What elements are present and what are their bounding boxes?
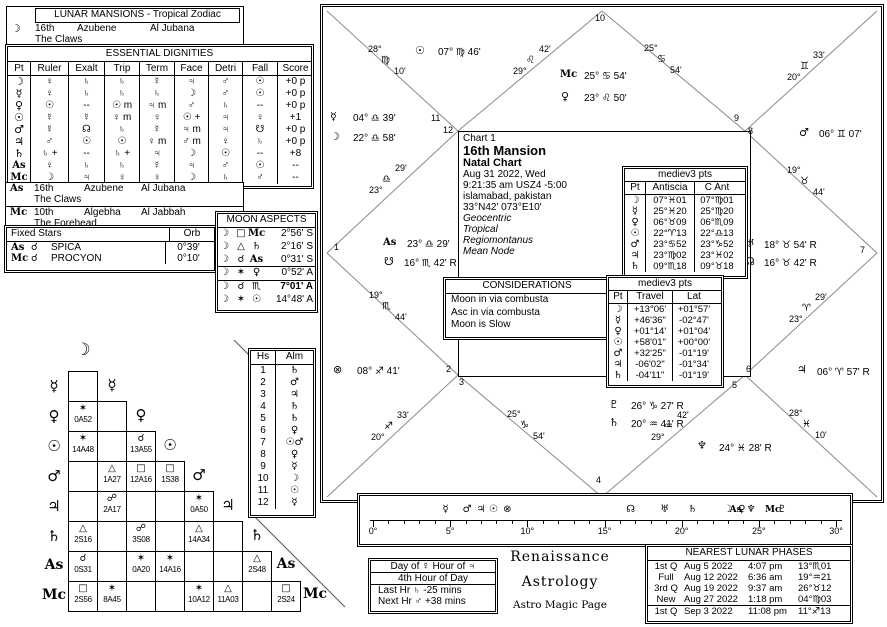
cusp-degree: 25°	[507, 410, 521, 419]
planet-glyph: ☿	[97, 376, 127, 394]
house-number: 3	[251, 389, 276, 401]
houses-almuten-panel: Hs Alm 1♄2♂3♃4♄5♄6♀7☉♂8♀9☿10☽11☉12☿	[248, 348, 316, 518]
house-almuten-row: 9☿	[251, 461, 313, 473]
lunar-phases-title: NEAREST LUNAR PHASES	[648, 547, 850, 561]
value: +01°57'	[673, 304, 715, 315]
cusp-sign-icon: ♐	[384, 422, 393, 431]
value: 07°♍01	[695, 195, 739, 206]
antiscia-title: mediev3 pts	[625, 169, 745, 182]
almuten-glyph: ♀	[276, 449, 313, 461]
last-hour: Last Hr ♄ -25 mins	[371, 585, 495, 596]
dignity-value: --	[278, 172, 313, 184]
dignity-value: ☿	[140, 160, 175, 172]
almuten-glyph: ♄	[276, 413, 313, 425]
planet-position: 16° ♉ 42' R	[764, 259, 817, 269]
aspect-cell	[97, 551, 127, 582]
moon-icon: ☽	[330, 131, 340, 142]
aspect-orb: 2S48	[243, 565, 271, 575]
ruler-tick	[558, 520, 559, 524]
aspect-icon: ☌	[234, 254, 248, 267]
house-almuten-row: 7☉♂	[251, 437, 313, 449]
mini-table-header: PtAntisciaC Ant	[625, 182, 745, 195]
cusp-minutes: 10'	[394, 67, 406, 76]
dignity-value: ♄	[69, 76, 105, 88]
almuten-glyph: ♃	[276, 389, 313, 401]
house-almuten-row: 1♄	[251, 365, 313, 377]
house-number: 1	[334, 243, 339, 252]
value: -04'11"	[628, 370, 673, 381]
house-almuten-row: 10☽	[251, 473, 313, 485]
planet-position: 08° ♐ 41'	[357, 367, 400, 377]
mini-table-row: ♀+01°14'+01°04'	[609, 326, 721, 337]
value: 23°♓02	[695, 250, 739, 261]
dignity-row: ♄♄ +--♄ +♃☽☉--+8	[8, 148, 311, 160]
mansion-number: 16th	[34, 183, 53, 194]
ruler-planet-glyph: ☉	[489, 504, 498, 516]
houses-column-header: Hs	[251, 351, 276, 364]
planet-row-label: As	[42, 557, 66, 573]
aspect-orb: 2S56	[69, 595, 97, 605]
planet-position: 22° ♎ 58'	[353, 134, 396, 144]
dignity-value: --	[243, 100, 278, 112]
phase-position: 19°♒21	[798, 572, 850, 583]
value: -02°47'	[673, 315, 715, 326]
dignity-value: --	[69, 100, 105, 112]
aspect-orb: 1S38	[156, 475, 184, 485]
aspect-icon: ✶	[234, 294, 248, 307]
aspect-cell: ✶0A20	[126, 551, 156, 582]
aspect-icon: □	[127, 462, 155, 475]
phase-date: Aug 27 2022	[684, 594, 748, 605]
planet-glyph: ♀	[625, 217, 646, 228]
dignity-value: ☿	[69, 112, 105, 124]
mini-table-row: ☉+58'01"+00°00'	[609, 337, 721, 348]
planet-glyph: ♀	[8, 100, 31, 112]
planet-position: 06° ♈ 57' R	[817, 368, 870, 378]
ruler-planet-glyph: ☊	[626, 504, 635, 516]
moon-aspects-title: MOON ASPECTS	[218, 214, 315, 228]
house-almuten-row: 3♃	[251, 389, 313, 401]
planet-glyph: As	[8, 160, 31, 172]
ascendant-icon: As	[10, 183, 23, 194]
dignity-value: ♃	[209, 124, 243, 136]
aspect-icon: ✶	[98, 582, 126, 595]
lunar-phase-row: NewAug 27 20221:18 pm04°♍03	[648, 594, 850, 605]
aspect-icon: ☍	[98, 492, 126, 505]
dignity-value: +0 p	[278, 88, 313, 100]
aspect-cell	[97, 431, 127, 462]
aspect-target-glyph: ♀	[248, 267, 265, 280]
column-header: Pt	[625, 182, 646, 194]
house-number: 12	[251, 497, 276, 509]
phase-date: Aug 19 2022	[684, 583, 748, 594]
cusp-sign-icon: ♈	[802, 304, 811, 313]
phase-time: 1:18 pm	[748, 594, 798, 605]
phase-date: Aug 12 2022	[684, 572, 748, 583]
ruler-tick-label: 15°	[598, 526, 612, 536]
mansion-number: 10th	[34, 207, 53, 218]
ruler-tick	[635, 520, 636, 524]
ruler-tick	[713, 520, 714, 524]
aspect-cell: △11A03	[213, 581, 243, 612]
dignity-value: ☉ m	[105, 100, 140, 112]
cusp-degree: 20°	[371, 433, 385, 442]
planet-glyph: ♃	[8, 136, 31, 148]
essential-dignities-panel: ESSENTIAL DIGNITIES PtRulerExaltTripTerm…	[5, 44, 314, 189]
dignity-value: ☿	[140, 76, 175, 88]
moon-aspect-row: ☽☌As0°31' S	[218, 254, 315, 268]
dignity-value: ♄	[69, 88, 105, 100]
ruler-baseline	[370, 520, 842, 521]
dignity-value: ☉ +	[175, 112, 209, 124]
cusp-degree: 28°	[368, 45, 382, 54]
lunar-phase-row: 1st QAug 5 20224:07 pm13°♏01	[648, 561, 850, 572]
brand-line: Astrology	[495, 575, 625, 590]
aspect-cell: ☌0S31	[68, 551, 98, 582]
dignity-value: +0 p	[278, 136, 313, 148]
mini-table-row: ♃-06'02"-01°34'	[609, 359, 721, 370]
almuten-glyph: ☽	[276, 473, 313, 485]
aspect-cell	[126, 491, 156, 522]
planet-position: 16° ♏ 42' R	[404, 259, 457, 269]
ruler-tick-label: 5°	[446, 526, 455, 536]
house-number: 9	[251, 461, 276, 473]
lunar-phase-row: FullAug 12 20226:36 am19°♒21	[648, 572, 850, 583]
essential-dignities-title: ESSENTIAL DIGNITIES	[8, 47, 311, 62]
phase-name: 1st Q	[648, 606, 684, 617]
house-number: 7	[860, 246, 865, 255]
phase-date: Aug 5 2022	[684, 561, 748, 572]
dignity-value: ☽	[175, 88, 209, 100]
dignity-value: ♃ m	[175, 124, 209, 136]
travel-table: PtTravelLat☽+13°06'+01°57'☿+46'36"-02°47…	[609, 291, 721, 381]
planet-glyph: ☉	[155, 436, 185, 454]
phase-time: 6:36 am	[748, 572, 798, 583]
dignity-value: ♄ +	[31, 148, 69, 160]
phase-name: Full	[648, 572, 684, 583]
cusp-degree: 20°	[787, 73, 801, 82]
moon-aspect-row: ☽✶♀0°52' A	[218, 267, 315, 281]
column-header: Travel	[628, 291, 673, 303]
ruler-tick	[481, 520, 482, 524]
aspect-orb: 0A52	[69, 415, 97, 425]
aspect-cell	[213, 521, 243, 552]
mars-icon: ♂	[799, 127, 809, 138]
aspect-cell: ✶0A50	[184, 491, 214, 522]
cusp-degree: 25°	[644, 44, 658, 53]
antiscia-panel: mediev3 pts PtAntisciaC Ant☽07°♓0107°♍01…	[622, 166, 748, 279]
dignity-value: ☉	[209, 148, 243, 160]
aspect-cell	[68, 491, 98, 522]
midheaven-icon: Mc	[7, 253, 31, 264]
aspect-icon: □	[156, 462, 184, 475]
cusp-sign-icon: ♍	[381, 56, 390, 65]
almuten-glyph: ♄	[276, 401, 313, 413]
aspect-icon: △	[185, 522, 213, 535]
moon-icon: ☽	[218, 294, 234, 307]
cusp-minutes: 29'	[395, 164, 407, 173]
mansion-alt-name: Al Jabbah	[141, 207, 185, 218]
cusp-minutes: 54'	[533, 432, 545, 441]
aspect-cell	[155, 491, 185, 522]
mercury-icon: ☿	[330, 111, 337, 122]
ruler-tick-label: 25°	[752, 526, 766, 536]
planet-position: 23° ♌ 50'	[584, 94, 627, 104]
ascendant-icon: As	[383, 237, 396, 248]
dignity-value: ♂	[209, 160, 243, 172]
dignity-row: ☿♀♄♄♄☽♂☉+0 p	[8, 88, 311, 100]
planet-glyph: ♃	[625, 250, 646, 261]
aspect-icon: ✶	[69, 402, 97, 415]
orb-value: 0°10'	[165, 253, 211, 264]
aspect-icon: ✶	[185, 492, 213, 505]
neptune-icon: ♆	[697, 440, 707, 451]
column-header: Ruler	[31, 62, 69, 75]
moon-aspect-row: ☽□Mc2°56' S	[218, 228, 315, 241]
column-header: Trip	[105, 62, 140, 75]
planet-glyph: ♀	[126, 406, 156, 424]
dignity-row: ♂☿☊♄☿♃ m♃☋+0 p	[8, 124, 311, 136]
dignity-value: ♄	[243, 136, 278, 148]
planet-glyph: ☽	[609, 304, 628, 315]
planet-row-label: ☉	[42, 437, 66, 455]
dignity-value: --	[243, 148, 278, 160]
value: 23°♍02	[646, 250, 695, 261]
aspect-orb: 11A03	[214, 595, 242, 605]
cusp-degree: 28°	[789, 409, 803, 418]
aspect-icon: ✶	[156, 552, 184, 565]
aspect-orb: 2°56' S	[265, 228, 315, 241]
conjunction-icon: ☌	[31, 253, 51, 264]
aspect-cell	[68, 371, 98, 402]
mansion-meaning: The Claws	[34, 194, 81, 205]
ruler-tick	[620, 520, 621, 524]
almuten-column-header: Alm	[276, 351, 313, 364]
aspect-cell	[68, 461, 98, 492]
part-of-fortune-icon: ⊗	[333, 364, 342, 375]
column-header: Exalt	[69, 62, 105, 75]
ruler-planet-glyph: ⊗	[503, 504, 511, 516]
mansion-alt-name: Al Jubana	[141, 183, 185, 194]
aspect-orb: 8A45	[98, 595, 126, 605]
aspect-target-glyph: As	[248, 254, 265, 267]
current-hour: 4th Hour of Day	[371, 573, 495, 585]
aspect-icon: ✶	[234, 267, 248, 280]
house-almuten-row: 11☉	[251, 485, 313, 497]
house-number: 4	[596, 476, 601, 485]
planet-position: 25° ♋ 54'	[584, 72, 627, 82]
orb-value: 0°39'	[165, 242, 211, 253]
dignity-row: ♀☉--☉ m♃ m♂♄--+0 p	[8, 100, 311, 112]
planet-glyph: ☉	[8, 112, 31, 124]
aspect-cell: □1S38	[155, 461, 185, 492]
almuten-glyph: ☉	[276, 485, 313, 497]
aspect-cell	[184, 551, 214, 582]
planet-glyph: ♂	[8, 124, 31, 136]
value: +01°14'	[628, 326, 673, 337]
chart-square: Chart 1 16th Mansion Natal Chart Aug 31 …	[320, 4, 884, 503]
dignity-value: ☊	[69, 124, 105, 136]
aspect-orb: 0°52' A	[265, 267, 315, 280]
aspect-orb: 0°31' S	[265, 254, 315, 267]
phase-position: 04°♍03	[798, 594, 850, 605]
dignity-value: ♂	[31, 136, 69, 148]
aspect-orb: 14A48	[69, 445, 97, 455]
aspect-cell	[97, 401, 127, 432]
dignity-value: ♃	[209, 112, 243, 124]
ruler-tick	[728, 520, 729, 524]
mansion-name: Azubene	[84, 183, 123, 194]
dignity-value: +0 p	[278, 124, 313, 136]
value: +00°00'	[673, 337, 715, 348]
considerations-title: CONSIDERATIONS	[446, 280, 608, 294]
ruler-tick	[496, 520, 497, 524]
dignity-value: ♀	[243, 112, 278, 124]
antiscia-table: PtAntisciaC Ant☽07°♓0107°♍01☿25°♓2025°♍2…	[625, 182, 745, 272]
planet-glyph: ♃	[609, 359, 628, 370]
dignities-header-row: PtRulerExaltTripTermFaceDetriFallScore	[8, 62, 311, 76]
degree-ruler: 0°5°10°15°20°25°30°☿♂♃☉⊗☊♅♄☽As♀♆Mc♇	[357, 493, 853, 547]
aspect-orb: 14°48' A	[265, 294, 315, 307]
lunar-phases-panel: NEAREST LUNAR PHASES 1st QAug 5 20224:07…	[645, 544, 853, 624]
ruler-tick	[543, 520, 544, 524]
ruler-tick-label: 30°	[829, 526, 843, 536]
dignity-value: ♄	[140, 88, 175, 100]
phase-name: New	[648, 594, 684, 605]
cusp-sign-icon: ♑	[520, 421, 529, 430]
mini-table-row: ♄-04'11"-01°19'	[609, 370, 721, 381]
travel-title: mediev3 pts	[609, 278, 721, 291]
mini-table-row: ☿25°♓2025°♍20	[625, 206, 745, 217]
ruler-planet-glyph: ♀	[738, 504, 745, 516]
orb-column-header: Orb	[170, 228, 214, 241]
aspect-icon: ✶	[127, 552, 155, 565]
consideration-item: Asc in via combusta	[446, 307, 608, 320]
dignity-value: ♀	[209, 136, 243, 148]
planet-glyph: ♄	[8, 148, 31, 160]
cusp-sign-icon: ♏	[382, 302, 391, 311]
aspect-target-glyph: Mc	[248, 228, 265, 241]
dignity-value: +1	[278, 112, 313, 124]
aspect-cell: □2S56	[68, 581, 98, 612]
dignity-value: ☿	[140, 124, 175, 136]
value: 23°♑52	[695, 239, 739, 250]
cusp-sign-icon: ♌	[526, 56, 535, 65]
ruler-tick	[388, 520, 389, 524]
dignity-value: ♄	[105, 88, 140, 100]
ruler-tick	[466, 520, 467, 524]
phase-position: 13°♏01	[798, 561, 850, 572]
house-number: 3	[459, 378, 464, 387]
ruler-tick	[743, 520, 744, 524]
column-header: Score	[278, 62, 313, 75]
house-number: 8	[251, 449, 276, 461]
value: 23°♋52	[646, 239, 695, 250]
mini-table-row: ☽+13°06'+01°57'	[609, 304, 721, 315]
ruler-planet-glyph: ♂	[463, 504, 472, 516]
venus-icon: ♀	[561, 91, 569, 102]
cusp-degree: 23°	[789, 315, 803, 324]
ruler-tick	[419, 520, 420, 524]
cusp-minutes: 44'	[395, 313, 407, 322]
planet-position: 18° ♉ 54' R	[764, 241, 817, 251]
moon-icon: ☽	[218, 241, 234, 254]
cusp-minutes: 33'	[813, 51, 825, 60]
value: -06'02"	[628, 359, 673, 370]
planet-position: 20° ♒ 41' R	[631, 420, 684, 430]
cusp-sign-icon: ♓	[802, 420, 811, 429]
aspect-orb: 0A20	[127, 565, 155, 575]
planet-position: 06° ♊ 07'	[819, 130, 862, 140]
cusp-minutes: 29'	[815, 293, 827, 302]
aspect-target-glyph: ♄	[248, 241, 265, 254]
ruler-tick	[435, 520, 436, 524]
cusp-degree: 29°	[651, 433, 665, 442]
column-header: Antiscia	[646, 182, 695, 194]
fixed-stars-panel: Fixed Stars Orb As ☌ SPICA 0°39' Mc ☌ PR…	[4, 225, 217, 273]
value: +32'25"	[628, 348, 673, 359]
almuten-glyph: ♄	[276, 365, 313, 377]
travel-panel: mediev3 pts PtTravelLat☽+13°06'+01°57'☿+…	[606, 275, 724, 388]
dignity-value: ☽	[175, 148, 209, 160]
dignity-value: ☉	[243, 76, 278, 88]
moon-icon: ☽	[218, 281, 234, 294]
mini-table-header: PtTravelLat	[609, 291, 721, 304]
ruler-tick	[404, 520, 405, 524]
fixed-star-row: Mc ☌ PROCYON 0°10'	[7, 253, 214, 264]
dignity-value: ♄	[105, 124, 140, 136]
aspect-icon: ✶	[185, 582, 213, 595]
saturn-icon: ♄	[609, 417, 619, 428]
house-number: 10	[251, 473, 276, 485]
aspect-icon: □	[69, 582, 97, 595]
moon-aspect-row: ☽☌♏7°01' A	[218, 281, 315, 294]
fixed-star-row: As ☌ SPICA 0°39'	[7, 242, 214, 253]
house-number: 11	[431, 114, 440, 123]
aspect-orb: 14A16	[156, 565, 184, 575]
branding: Renaissance Astrology Astro Magic Page	[495, 550, 625, 611]
planet-row-label: ☿	[42, 377, 66, 395]
cusp-minutes: 44'	[813, 188, 825, 197]
midheaven-icon: Mc	[560, 69, 577, 80]
dignity-value: ☉	[243, 88, 278, 100]
aspect-target-glyph: ☉	[248, 294, 265, 307]
dignity-value: ♄	[105, 160, 140, 172]
aspect-orb: 7°01' A	[265, 281, 315, 294]
cusp-sign-icon: ♊	[800, 62, 809, 71]
house-almuten-row: 4♄	[251, 401, 313, 413]
column-header: Fall	[243, 62, 278, 75]
value: 25°♓20	[646, 206, 695, 217]
phase-date: Sep 3 2022	[684, 606, 748, 617]
essential-dignities-table: PtRulerExaltTripTermFaceDetriFallScore☽♀…	[8, 62, 311, 184]
lunar-mansions-panel: LUNAR MANSIONS - Tropical Zodiac ☽ 16th …	[6, 6, 244, 46]
aspect-cell: △1A27	[97, 461, 127, 492]
aspect-cell	[242, 581, 272, 612]
planet-glyph: ♄	[242, 526, 272, 544]
fixed-stars-title: Fixed Stars	[7, 228, 170, 241]
dignity-value: ☉	[69, 136, 105, 148]
phase-time: 9:37 am	[748, 583, 798, 594]
planetary-hours-panel: Day of ☿ Hour of ♃ 4th Hour of Day Last …	[368, 558, 498, 614]
aspect-orb: 0A50	[185, 505, 213, 515]
house-number: 5	[732, 381, 737, 390]
house-almuten-row: 12☿	[251, 497, 313, 509]
planet-glyph: ♃	[213, 496, 243, 514]
dignity-value: ♀ m	[140, 136, 175, 148]
almuten-glyph: ☉♂	[276, 437, 313, 449]
aspect-orb: 2°16' S	[265, 241, 315, 254]
